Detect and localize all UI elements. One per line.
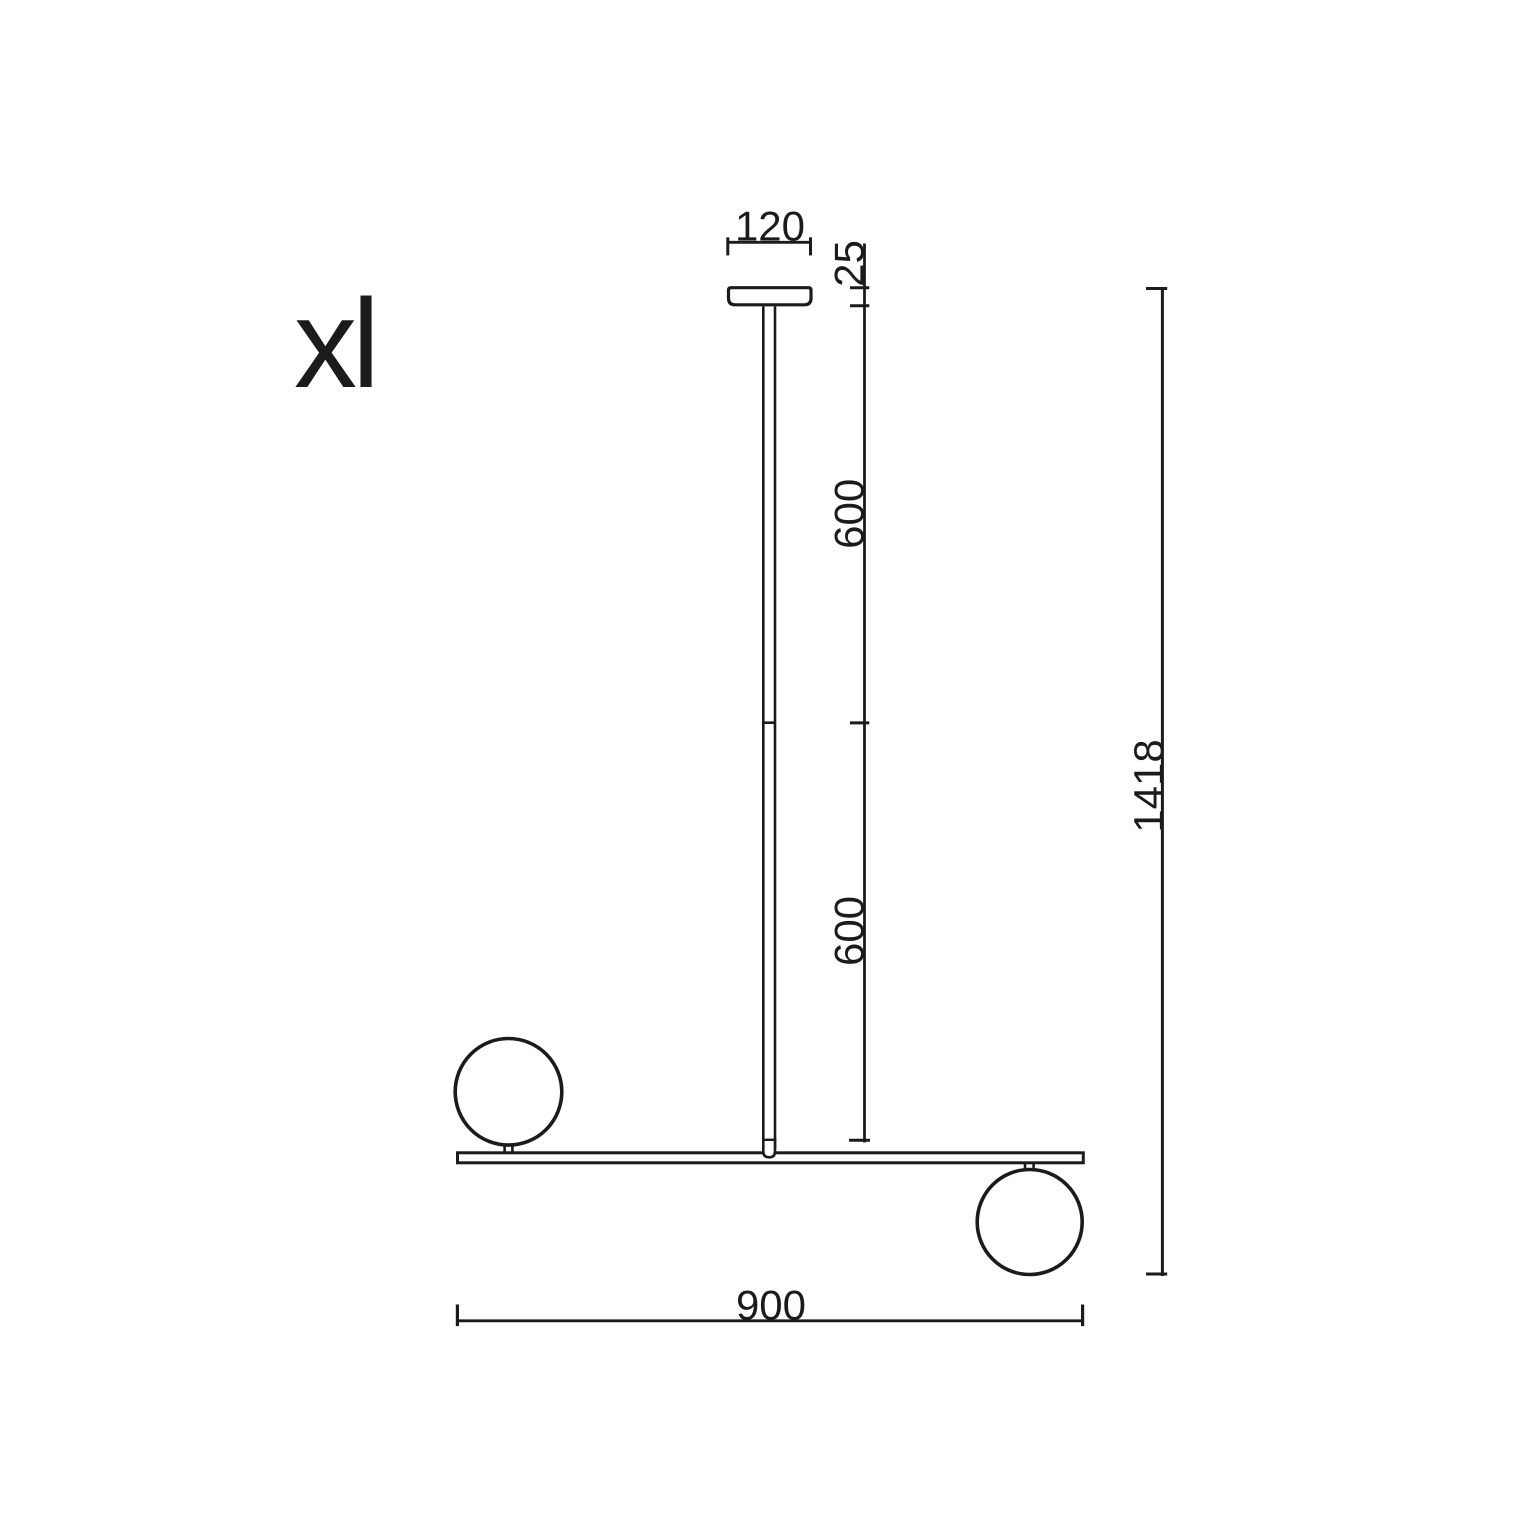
svg-text:x: x xyxy=(294,273,357,414)
svg-text:l: l xyxy=(352,273,380,414)
svg-text:600: 600 xyxy=(826,896,873,966)
svg-text:25: 25 xyxy=(826,240,873,287)
svg-text:600: 600 xyxy=(826,479,873,549)
svg-text:1418: 1418 xyxy=(1125,739,1172,832)
